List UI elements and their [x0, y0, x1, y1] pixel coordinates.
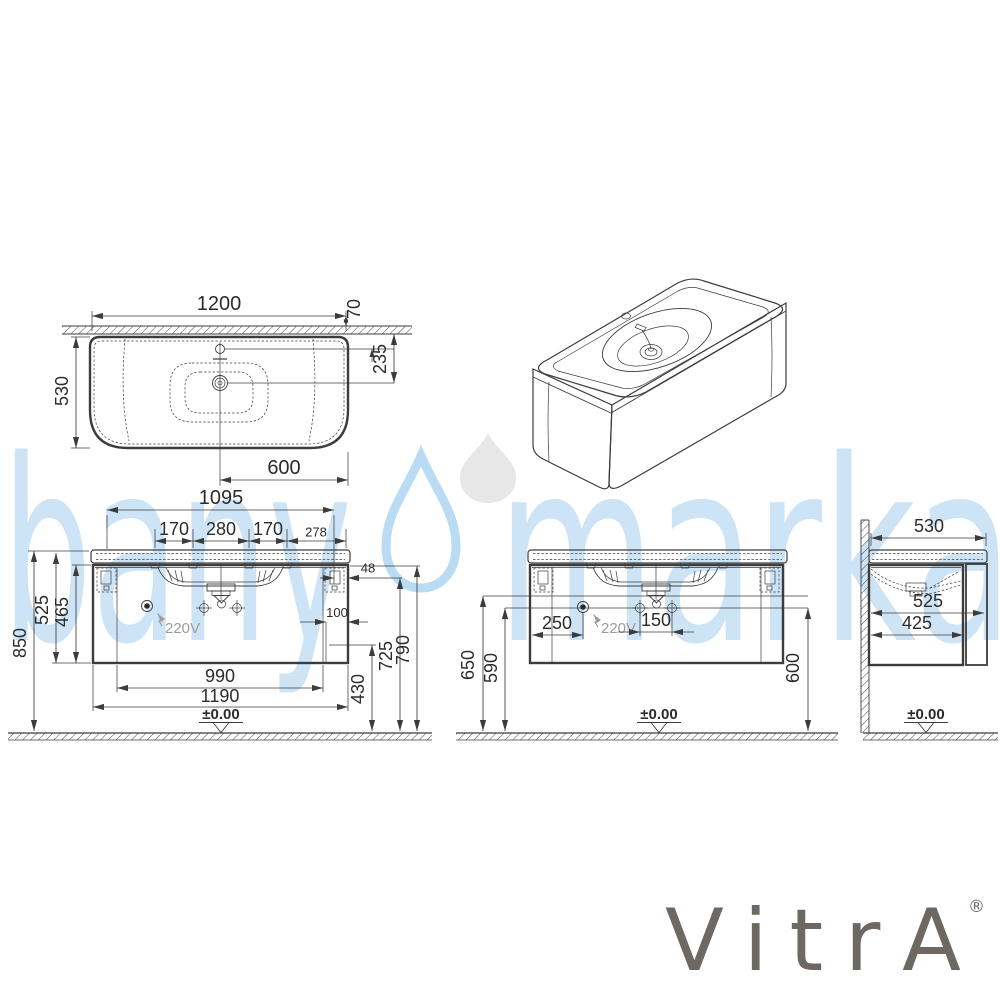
dim-hole-right: 170	[253, 519, 283, 539]
datum-triangle-icon	[213, 723, 229, 733]
datum-label: ±0.00	[202, 706, 239, 723]
dim-cabinet-depth: 425	[902, 613, 932, 633]
dim-edge-gap: 48	[361, 561, 375, 576]
floor-hatch	[456, 733, 838, 740]
datum-label: ±0.00	[907, 706, 944, 723]
dim-rim-to-wall: 70	[344, 299, 364, 319]
dim-fixing-span: 1095	[199, 487, 244, 509]
floor-hatch	[863, 733, 998, 740]
registered-mark: ®	[968, 897, 985, 917]
dim-hole-to-edge: 278	[305, 525, 327, 540]
iso-drain	[640, 345, 662, 360]
dim-430: 430	[348, 674, 368, 704]
outlet-label: 220V	[601, 620, 636, 637]
datum-triangle-icon	[651, 723, 667, 733]
dim-790: 790	[393, 635, 413, 665]
datum-label: ±0.00	[640, 706, 677, 723]
dim-850: 850	[10, 628, 30, 658]
floor-hatch	[8, 733, 432, 740]
outlet-label: 220V	[165, 620, 200, 637]
dim-depth: 530	[52, 376, 72, 406]
dim-600: 600	[783, 653, 803, 683]
brand-name: VitrA	[665, 891, 961, 991]
dim-465: 465	[52, 597, 72, 627]
dim-650: 650	[458, 650, 478, 680]
dim-hole-left: 170	[159, 519, 189, 539]
dim-525: 525	[32, 595, 52, 625]
dim-cabinet-width: 1190	[201, 686, 240, 706]
dim-drain-to-edge: 600	[267, 457, 300, 479]
dim-drain-to-wall: 235	[370, 344, 390, 374]
wall-hatch	[62, 326, 412, 334]
dim-hole-mid: 280	[206, 519, 236, 539]
watermark-blue-drop-icon	[386, 456, 456, 588]
brand-logo: VitrA ®	[665, 891, 985, 991]
dim-width: 1200	[197, 293, 242, 315]
dim-top-depth: 530	[914, 516, 944, 536]
dim-outlet-offset: 250	[542, 613, 572, 633]
dim-screw-spacing: 150	[641, 610, 671, 630]
dim-total-depth: 525	[913, 591, 943, 611]
datum-triangle-icon	[918, 723, 934, 733]
dim-inner-width: 990	[205, 666, 235, 686]
technical-drawing-page: bany marka 1200 70 530	[0, 0, 1000, 1000]
dim-recess: 100	[326, 605, 348, 620]
drawing-svg: bany marka 1200 70 530	[0, 0, 1000, 1000]
dim-590: 590	[481, 653, 501, 683]
iso-basin-rim	[594, 296, 719, 384]
wall-hatch	[861, 520, 869, 733]
